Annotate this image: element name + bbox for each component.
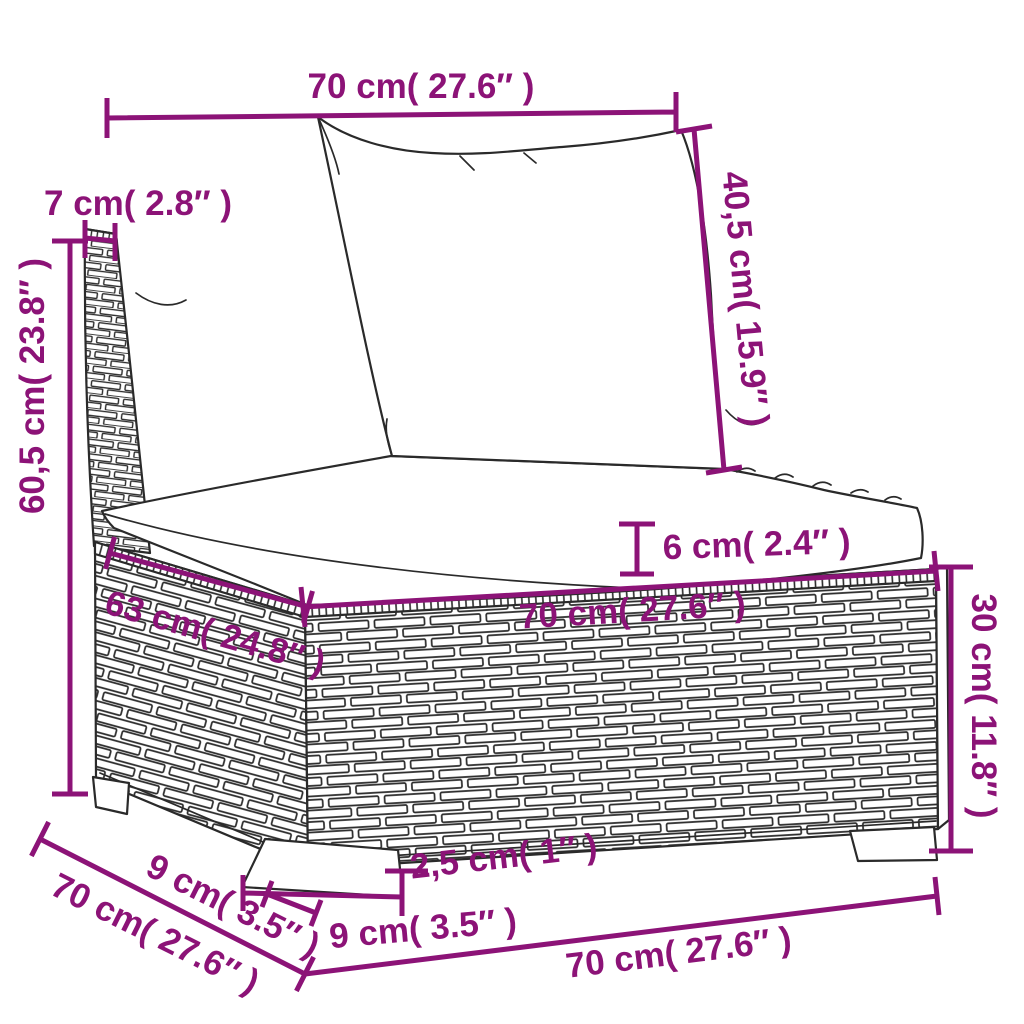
dim-total-height-label: 60,5 cm( 23.8″ ) (13, 258, 52, 514)
dim-top-width-label: 70 cm( 27.6″ ) (308, 67, 535, 106)
front-leg (242, 839, 403, 897)
left-leg (93, 777, 129, 814)
dim-base-height-label: 30 cm( 11.8″ ) (964, 594, 1003, 819)
dim-cushion-thickness-label: 6 cm( 2.4″ ) (662, 522, 851, 568)
dim-top-width: 70 cm( 27.6″ ) (107, 67, 676, 138)
dim-post-width-label: 7 cm( 2.8″ ) (44, 184, 232, 223)
right-leg (850, 827, 937, 861)
sofa-drawing (85, 117, 949, 897)
base-right-edge (936, 567, 949, 829)
dimension-diagram: 70 cm( 27.6″ ) 40,5 cm( 15.9″ ) 7 cm( 2.… (0, 0, 1024, 1024)
dim-back-height-label: 40,5 cm( 15.9″ ) (714, 170, 776, 429)
cushion-fold-line (136, 293, 186, 305)
dim-total-height: 60,5 cm( 23.8″ ) (13, 241, 88, 794)
dim-leg-width-label: 9 cm( 3.5″ ) (328, 901, 519, 956)
